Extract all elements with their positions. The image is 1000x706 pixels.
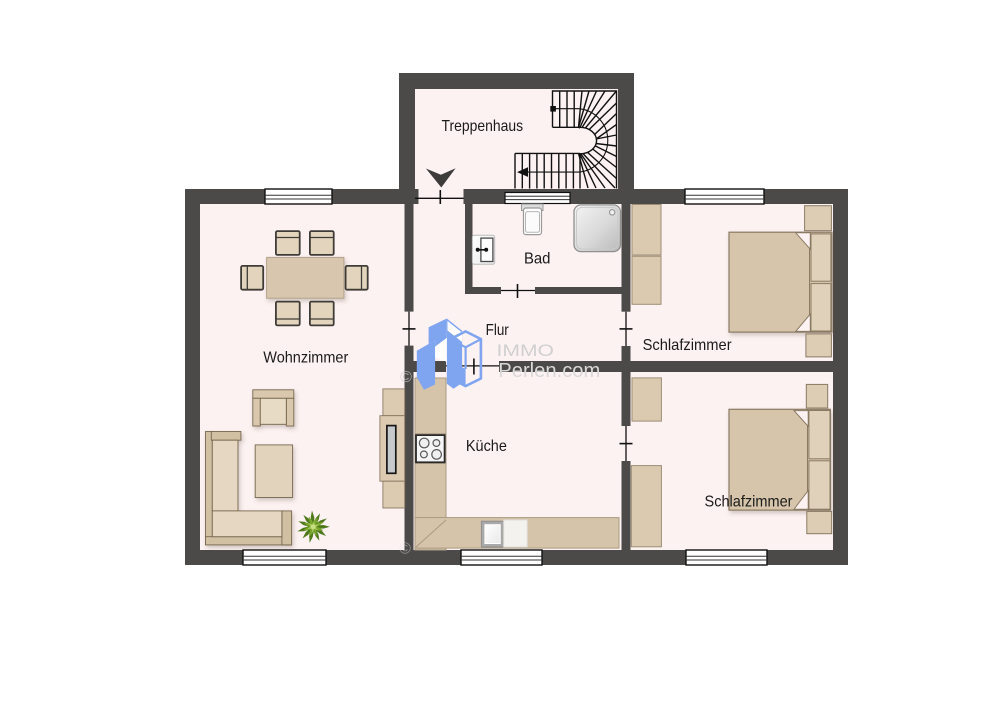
- svg-text:Flur: Flur: [486, 322, 510, 339]
- svg-text:Schlafzimmer: Schlafzimmer: [643, 337, 733, 354]
- svg-text:Treppenhaus: Treppenhaus: [442, 118, 524, 135]
- svg-text:IMMO: IMMO: [497, 341, 555, 360]
- svg-text:Wohnzimmer: Wohnzimmer: [263, 349, 349, 366]
- svg-text:Perlen.com: Perlen.com: [498, 360, 600, 382]
- svg-text:Bad: Bad: [524, 250, 551, 267]
- svg-text:©: ©: [400, 369, 412, 386]
- svg-text:Schlafzimmer: Schlafzimmer: [705, 494, 794, 511]
- svg-text:©: ©: [399, 541, 411, 558]
- svg-text:Küche: Küche: [466, 438, 507, 455]
